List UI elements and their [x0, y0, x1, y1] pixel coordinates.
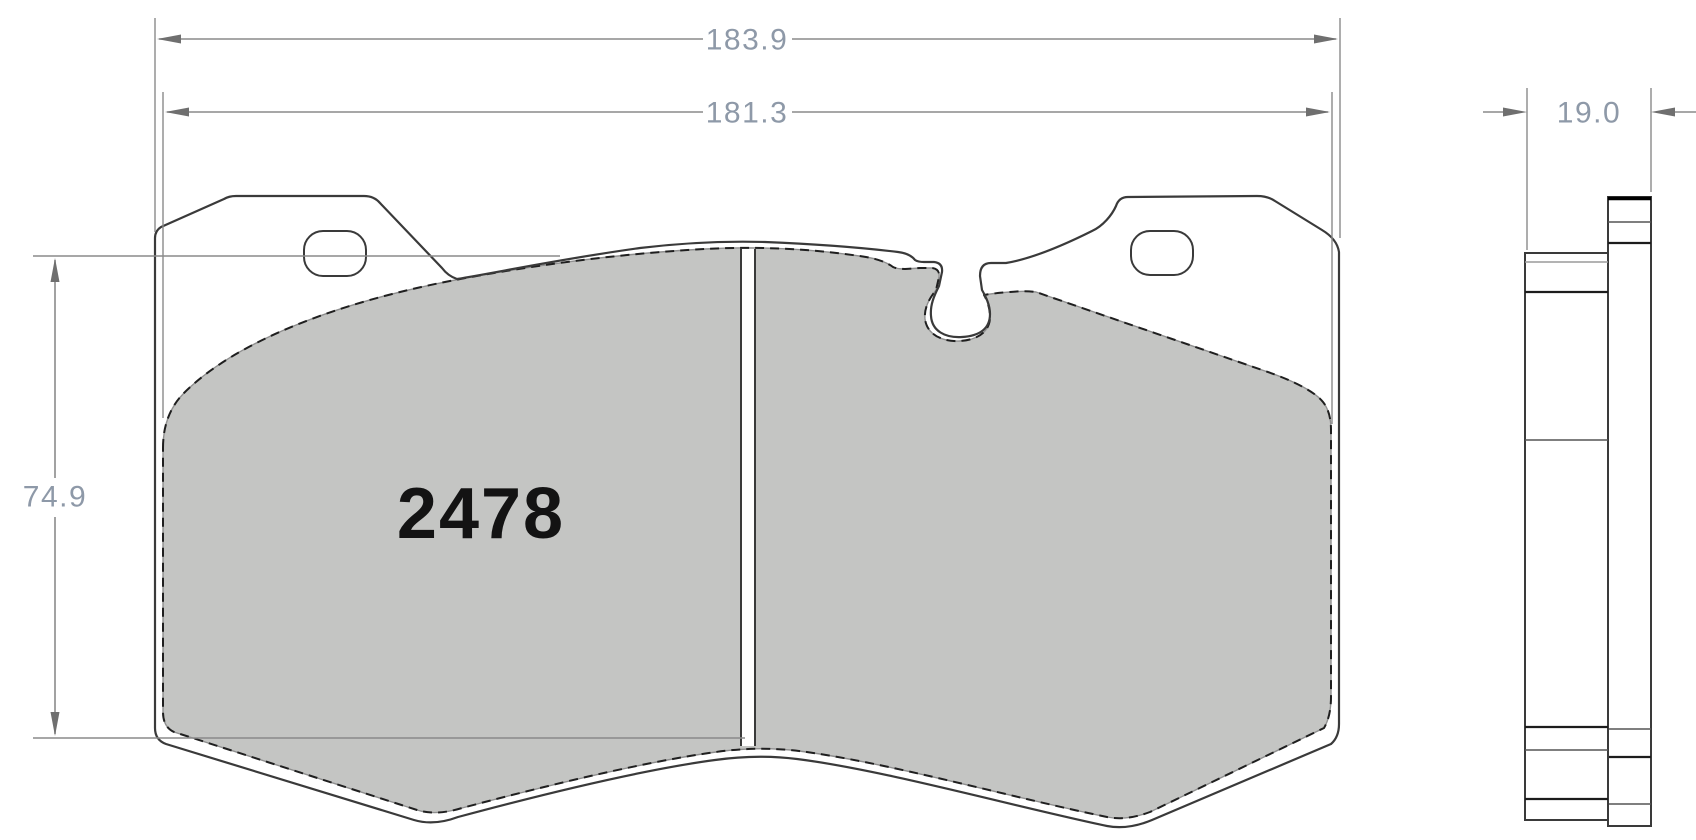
arrowhead-right	[1306, 108, 1330, 117]
side-backing-plate	[1608, 197, 1651, 826]
left-ear-hole	[304, 231, 366, 276]
technical-drawing: 2478 183.9 181.3 74.9	[0, 0, 1696, 840]
arrowhead-left	[165, 108, 189, 117]
drawing-canvas: 2478 183.9 181.3 74.9	[0, 0, 1696, 840]
pad-front-view: 2478	[155, 196, 1339, 827]
thickness-label: 19.0	[1557, 97, 1621, 130]
arrowhead-left	[1503, 108, 1527, 117]
overall-width-label: 183.9	[706, 24, 789, 57]
pad-side-view	[1525, 197, 1651, 826]
pad-width-label: 181.3	[706, 97, 789, 130]
arrowhead-right	[1314, 35, 1338, 44]
arrowhead-left	[157, 35, 181, 44]
right-ear-hole	[1131, 231, 1193, 275]
arrowhead-bottom	[51, 712, 60, 736]
center-slot-gap	[741, 249, 755, 746]
arrowhead-top	[51, 258, 60, 282]
arrowhead-right	[1651, 108, 1675, 117]
center-slot	[741, 249, 755, 746]
part-number: 2478	[397, 474, 565, 554]
side-friction-material	[1525, 253, 1608, 820]
dimension-thickness: 19.0	[1483, 88, 1696, 250]
pad-height-label: 74.9	[23, 481, 87, 514]
